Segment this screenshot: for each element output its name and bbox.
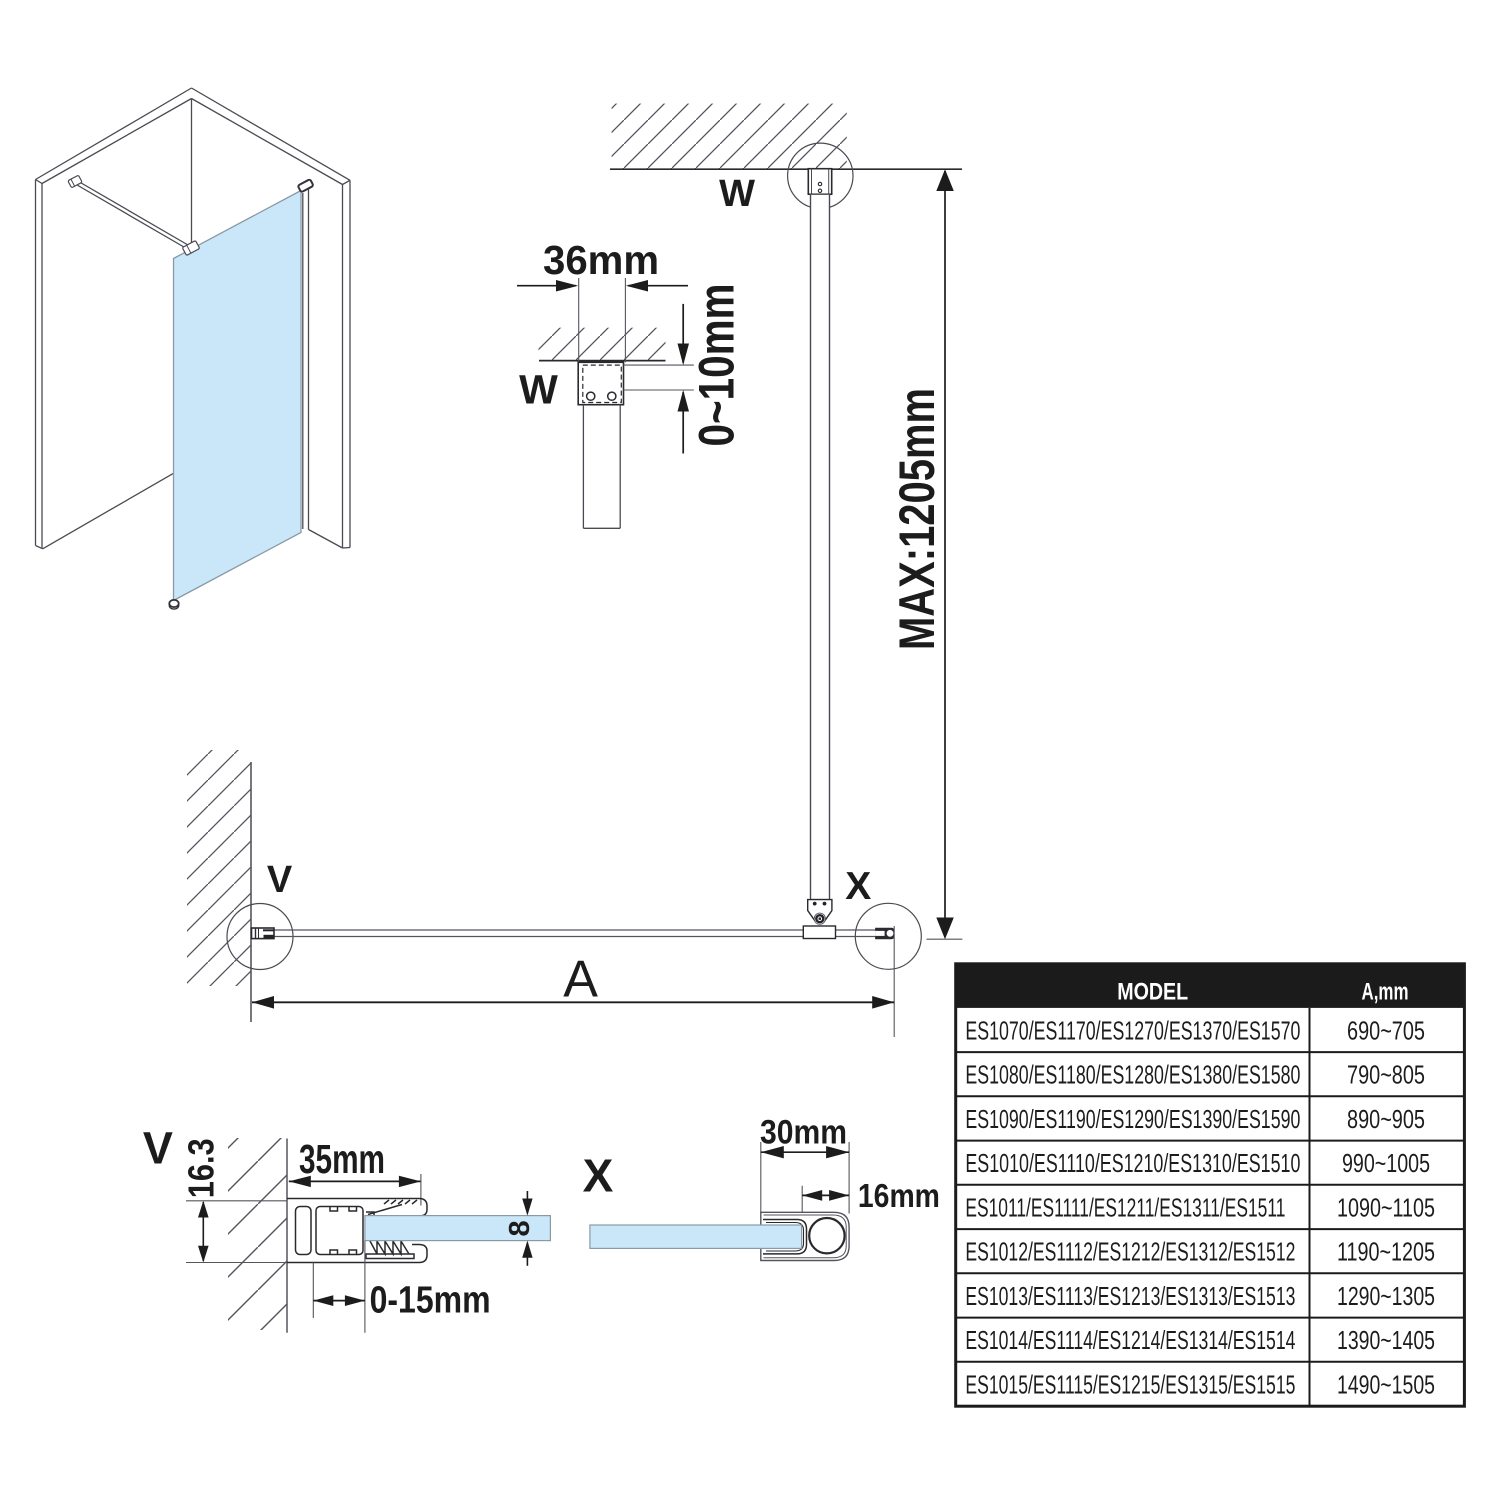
svg-text:1490~1505: 1490~1505 — [1337, 1369, 1435, 1399]
svg-text:A,mm: A,mm — [1362, 978, 1409, 1005]
svg-text:990~1005: 990~1005 — [1342, 1148, 1430, 1178]
svg-text:0~10mm: 0~10mm — [689, 284, 745, 447]
svg-text:X: X — [583, 1150, 614, 1202]
svg-text:ES1015/ES1115/ES1215/ES1315/ES: ES1015/ES1115/ES1215/ES1315/ES1515 — [965, 1369, 1295, 1399]
svg-text:690~705: 690~705 — [1347, 1015, 1425, 1045]
svg-text:ES1013/ES1113/ES1213/ES1313/ES: ES1013/ES1113/ES1213/ES1313/ES1513 — [965, 1281, 1295, 1311]
svg-text:1090~1105: 1090~1105 — [1337, 1192, 1435, 1222]
svg-text:8: 8 — [504, 1220, 536, 1236]
svg-text:1190~1205: 1190~1205 — [1337, 1237, 1435, 1267]
svg-text:V: V — [143, 1122, 173, 1173]
svg-text:1290~1305: 1290~1305 — [1337, 1281, 1435, 1311]
svg-text:790~805: 790~805 — [1347, 1060, 1425, 1090]
svg-text:X: X — [845, 865, 871, 908]
svg-text:W: W — [719, 173, 755, 215]
svg-text:W: W — [519, 367, 558, 413]
svg-text:35mm: 35mm — [299, 1136, 385, 1182]
svg-text:ES1090/ES1190/ES1290/ES1390/ES: ES1090/ES1190/ES1290/ES1390/ES1590 — [965, 1104, 1300, 1134]
svg-text:ES1070/ES1170/ES1270/ES1370/ES: ES1070/ES1170/ES1270/ES1370/ES1570 — [965, 1015, 1300, 1045]
svg-text:ES1012/ES1112/ES1212/ES1312/ES: ES1012/ES1112/ES1212/ES1312/ES1512 — [965, 1237, 1295, 1267]
svg-text:30mm: 30mm — [760, 1114, 847, 1152]
svg-text:V: V — [267, 859, 293, 901]
svg-text:890~905: 890~905 — [1347, 1104, 1425, 1134]
svg-text:ES1011/ES1111/ES1211/ES1311/ES: ES1011/ES1111/ES1211/ES1311/ES1511 — [965, 1192, 1285, 1222]
svg-text:ES1080/ES1180/ES1280/ES1380/ES: ES1080/ES1180/ES1280/ES1380/ES1580 — [965, 1060, 1300, 1090]
svg-text:0-15mm: 0-15mm — [370, 1280, 491, 1322]
svg-text:MODEL: MODEL — [1117, 978, 1188, 1005]
svg-text:ES1010/ES1110/ES1210/ES1310/ES: ES1010/ES1110/ES1210/ES1310/ES1510 — [965, 1148, 1300, 1178]
svg-text:MAX:1205mm: MAX:1205mm — [889, 388, 945, 650]
svg-text:1390~1405: 1390~1405 — [1337, 1325, 1435, 1355]
svg-text:ES1014/ES1114/ES1214/ES1314/ES: ES1014/ES1114/ES1214/ES1314/ES1514 — [965, 1325, 1295, 1355]
svg-text:36mm: 36mm — [543, 237, 659, 283]
svg-text:16mm: 16mm — [858, 1177, 940, 1214]
svg-text:16.3: 16.3 — [180, 1138, 221, 1198]
svg-text:A: A — [563, 951, 598, 1009]
